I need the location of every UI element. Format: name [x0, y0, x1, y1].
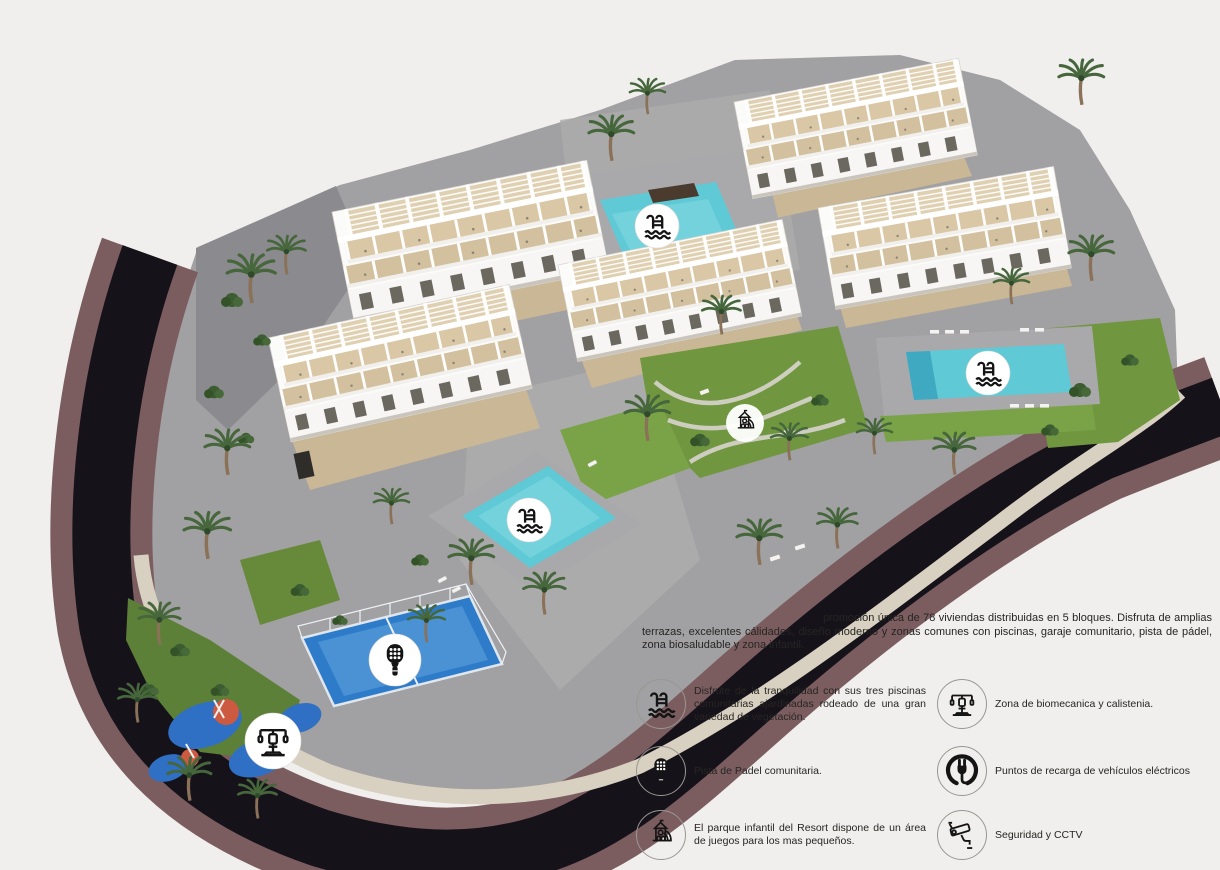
feature-playground-text: El parque infantil del Resort dispone de… — [694, 822, 926, 848]
biomechanics-icon — [937, 679, 987, 729]
feature-cctv: Seguridad y CCTV — [937, 810, 1217, 860]
promo-description: promoción única de 78 viviendas distribu… — [642, 612, 1212, 653]
feature-playground: El parque infantil del Resort dispone de… — [636, 810, 926, 860]
site-plan-rendering — [0, 0, 1220, 870]
map-badge-padel — [369, 634, 421, 686]
feature-biomechanics-text: Zona de biomecanica y calistenia. — [995, 698, 1217, 711]
playground-icon — [636, 810, 686, 860]
feature-pools: Disfrute de la tranquilidad con sus tres… — [636, 679, 926, 729]
ev-charging-icon — [937, 746, 987, 796]
feature-padel: Pista de Padel comunitaria. — [636, 746, 926, 796]
feature-ev-charging: Puntos de recarga de vehículos eléctrico… — [937, 746, 1217, 796]
map-badge-playground — [726, 404, 764, 442]
pool-icon — [636, 679, 686, 729]
cctv-icon — [937, 810, 987, 860]
map-badge-biomechanics — [245, 713, 301, 769]
feature-padel-text: Pista de Padel comunitaria. — [694, 765, 926, 778]
feature-biomechanics: Zona de biomecanica y calistenia. — [937, 679, 1217, 729]
map-badge-pool-3 — [507, 498, 551, 542]
map-badge-pool-1 — [635, 204, 679, 248]
map-badge-pool-2 — [966, 351, 1010, 395]
feature-pools-text: Disfrute de la tranquilidad con sus tres… — [694, 685, 926, 724]
feature-cctv-text: Seguridad y CCTV — [995, 829, 1217, 842]
padel-icon — [636, 746, 686, 796]
feature-ev-charging-text: Puntos de recarga de vehículos eléctrico… — [995, 765, 1217, 778]
